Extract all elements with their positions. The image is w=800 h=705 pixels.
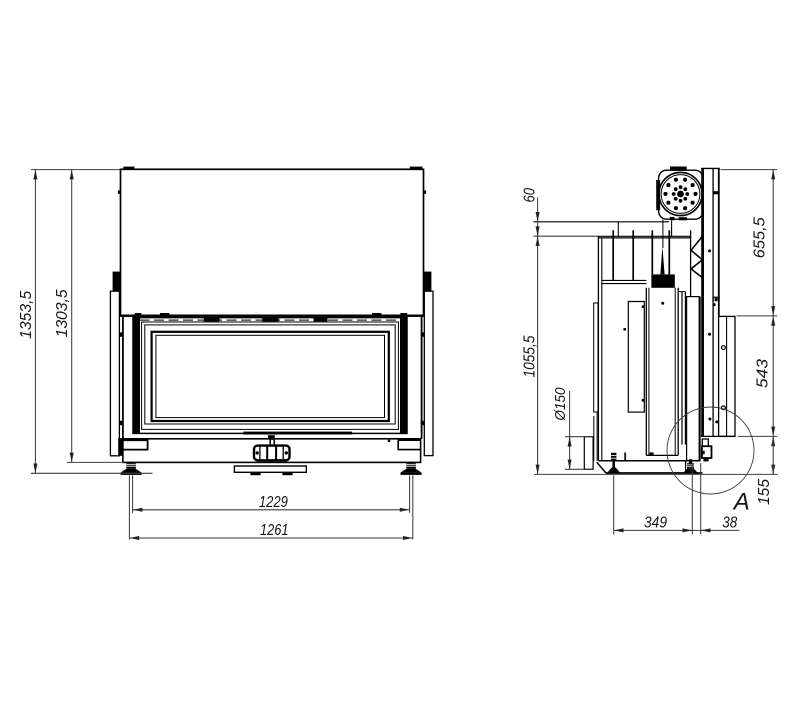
svg-text:60: 60 — [522, 188, 539, 203]
svg-text:1261: 1261 — [260, 522, 289, 539]
svg-text:Ø150: Ø150 — [552, 387, 569, 421]
svg-text:543: 543 — [755, 359, 772, 388]
svg-text:1353,5: 1353,5 — [18, 291, 35, 339]
svg-text:A: A — [732, 489, 750, 516]
svg-text:349: 349 — [644, 514, 667, 531]
svg-text:38: 38 — [722, 514, 737, 531]
svg-text:655,5: 655,5 — [751, 217, 768, 258]
svg-text:1303,5: 1303,5 — [54, 289, 71, 337]
svg-text:1055,5: 1055,5 — [522, 335, 539, 377]
svg-text:155: 155 — [756, 479, 773, 505]
svg-text:1229: 1229 — [259, 494, 288, 511]
